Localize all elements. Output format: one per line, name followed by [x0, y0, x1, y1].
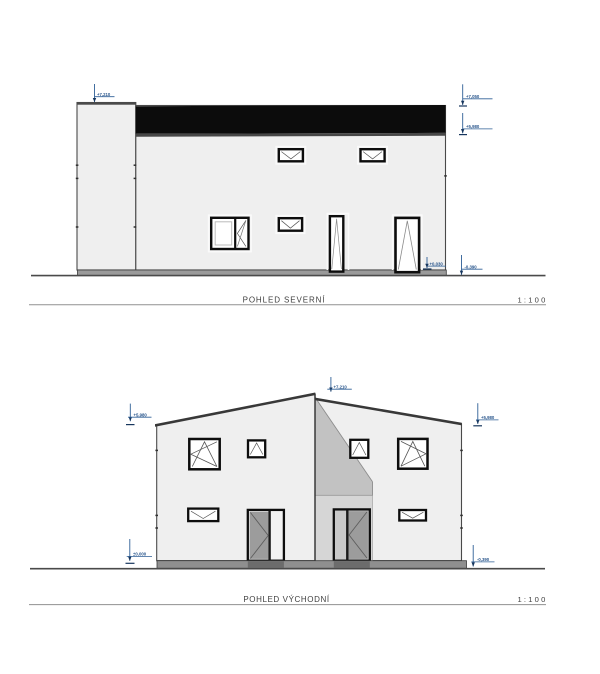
- svg-text:+5,980: +5,980: [466, 124, 480, 129]
- svg-text:1:100: 1:100: [517, 595, 547, 604]
- svg-text:-0,390: -0,390: [465, 264, 478, 269]
- svg-text:POHLED SEVERNÍ: POHLED SEVERNÍ: [243, 296, 326, 305]
- svg-text:+7,210: +7,210: [334, 384, 348, 389]
- svg-text:+5,980: +5,980: [481, 415, 495, 420]
- svg-text:+7,210: +7,210: [97, 92, 111, 97]
- svg-text:-0,390: -0,390: [477, 557, 490, 562]
- svg-text:±0,000: ±0,000: [133, 552, 147, 557]
- svg-text:POHLED VÝCHODNÍ: POHLED VÝCHODNÍ: [243, 595, 330, 604]
- svg-text:+7,050: +7,050: [466, 94, 480, 99]
- svg-text:+0,030: +0,030: [430, 261, 444, 266]
- svg-text:+5,980: +5,980: [134, 412, 148, 417]
- svg-text:1:100: 1:100: [517, 296, 547, 305]
